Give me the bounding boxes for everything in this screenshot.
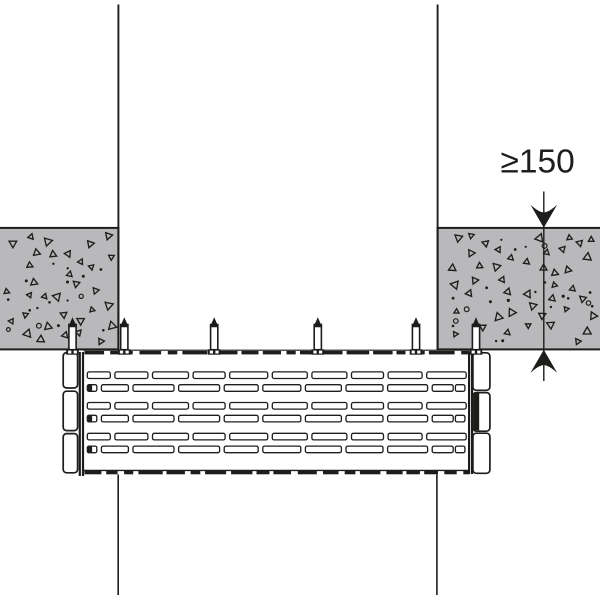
- svg-text:≥150: ≥150: [501, 144, 575, 181]
